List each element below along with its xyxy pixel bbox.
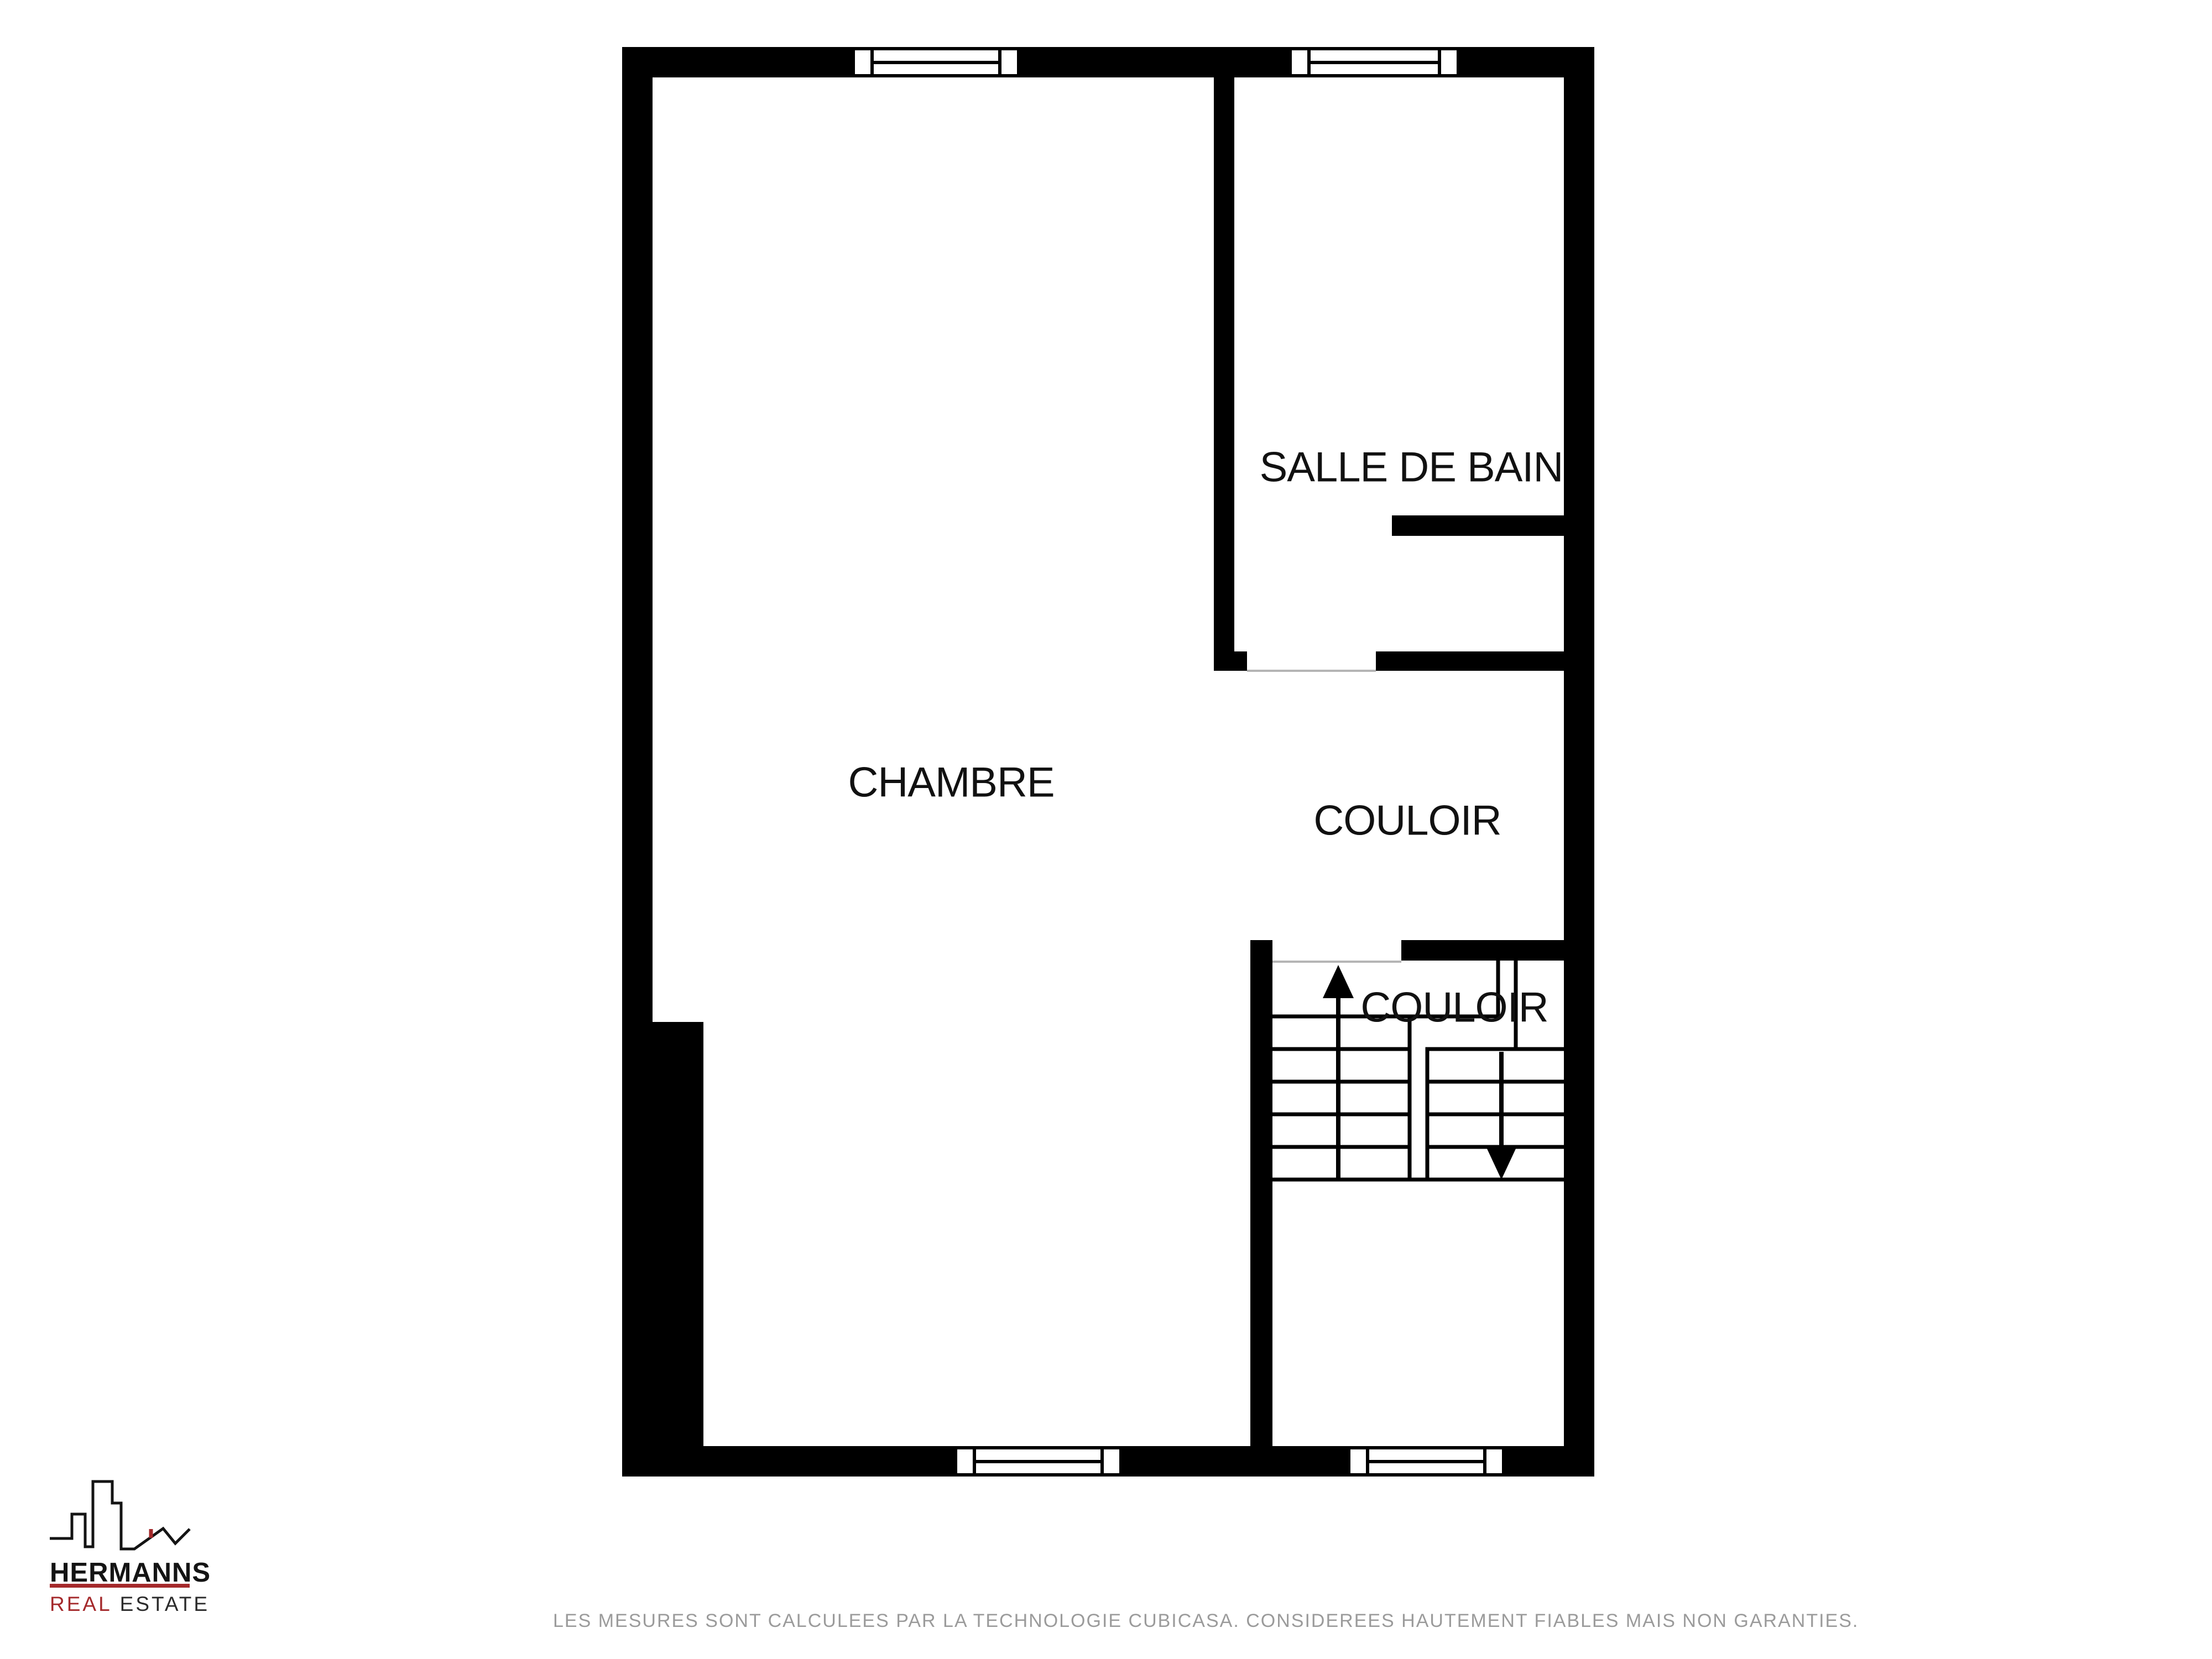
door-opening-bathroom <box>1247 670 1376 672</box>
window-top-right <box>1288 47 1460 77</box>
wall-right <box>1564 47 1594 1477</box>
wall-stair-north <box>1401 940 1564 961</box>
wall-bathroom-south-left <box>1376 651 1564 671</box>
floor-plan-page: CHAMBRE SALLE DE BAIN COULOIR COULOIR HE… <box>0 0 2212 1659</box>
room-label-chambre: CHAMBRE <box>848 759 1054 807</box>
logo-subtitle-real: REAL <box>50 1593 112 1615</box>
agency-logo: HERMANNS REALESTATE <box>47 1475 213 1619</box>
window-cap-divider <box>1438 50 1441 74</box>
logo-subtitle: REALESTATE <box>50 1593 210 1616</box>
room-label-couloir-upper: COULOIR <box>1313 797 1501 845</box>
window-cap-divider <box>998 50 1001 74</box>
room-label-couloir-stairs: COULOIR <box>1360 984 1548 1032</box>
window-cap-divider <box>1483 1449 1486 1473</box>
logo-subtitle-estate: ESTATE <box>120 1593 210 1615</box>
wall-chambre-bathroom-divider <box>1214 77 1234 671</box>
stair-treads-right-flight <box>1427 1049 1564 1147</box>
stair-treads-left-flight <box>1272 1016 1410 1147</box>
window-cap-divider <box>1100 1449 1104 1473</box>
window-midline <box>1311 61 1438 64</box>
logo-divider-rule <box>50 1584 190 1588</box>
wall-stair-west <box>1250 940 1272 1446</box>
window-bottom-right <box>1347 1446 1505 1477</box>
wall-divider-foot <box>1214 651 1247 671</box>
room-label-salle-de-bain: SALLE DE BAIN <box>1260 444 1563 492</box>
measurement-disclaimer: LES MESURES SONT CALCULEES PAR LA TECHNO… <box>553 1610 1687 1632</box>
wall-left-thick-section <box>622 1022 703 1477</box>
window-bottom-left <box>954 1446 1123 1477</box>
window-midline <box>976 1460 1100 1463</box>
window-top-left <box>852 47 1020 77</box>
city-skyline-icon <box>47 1475 196 1553</box>
wall-bathroom-south-right <box>1392 515 1564 536</box>
window-midline <box>1369 1460 1483 1463</box>
window-midline <box>874 61 998 64</box>
